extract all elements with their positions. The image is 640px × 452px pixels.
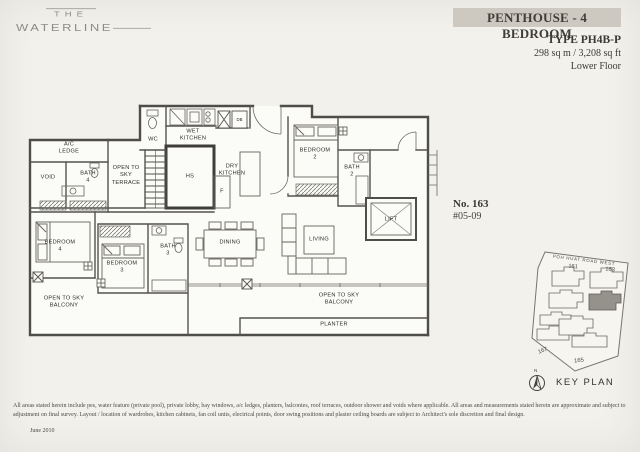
lift-shaft bbox=[366, 198, 416, 240]
riser-shaft bbox=[218, 111, 247, 128]
disclaimer-line2: adjustment on final survey. Layout / loc… bbox=[13, 412, 525, 418]
type-code-label: TYPE PH4B-P bbox=[547, 34, 621, 46]
waterline-logo: THE WATERLINE bbox=[16, 7, 156, 35]
highlighted-unit bbox=[589, 291, 621, 310]
external-stair bbox=[428, 150, 437, 196]
logo-line-the: THE bbox=[46, 8, 96, 18]
logo-line-waterline: WATERLINE bbox=[16, 22, 113, 34]
floor-level-label: Lower Floor bbox=[571, 61, 621, 72]
keyplan-block-161: 161 bbox=[568, 264, 578, 271]
keyplan-block-165: 165 bbox=[574, 358, 584, 365]
floor-plan-drawing bbox=[0, 0, 640, 452]
unit-stack-number: #05-09 bbox=[453, 211, 488, 222]
publication-date: June 2010 bbox=[30, 428, 55, 434]
unit-number-block: No. 163 #05-09 bbox=[453, 198, 488, 222]
keyplan-block-163: 163 bbox=[605, 267, 615, 274]
area-label: 298 sq m / 3,208 sq ft bbox=[534, 48, 621, 59]
block-number: No. 163 bbox=[453, 198, 488, 210]
brochure-page: THE WATERLINE PENTHOUSE - 4 BEDROOM TYPE… bbox=[0, 0, 640, 452]
compass-icon bbox=[530, 376, 545, 391]
compass-north-label: N bbox=[534, 368, 537, 373]
logo-rule bbox=[113, 28, 151, 29]
keyplan-title: KEY PLAN bbox=[556, 377, 614, 388]
disclaimer-text: All areas stated herein include pes, wat… bbox=[13, 402, 631, 421]
unit-type-title: PENTHOUSE - 4 BEDROOM bbox=[453, 8, 621, 27]
disclaimer-line1: All areas stated herein include pes, wat… bbox=[13, 403, 626, 409]
